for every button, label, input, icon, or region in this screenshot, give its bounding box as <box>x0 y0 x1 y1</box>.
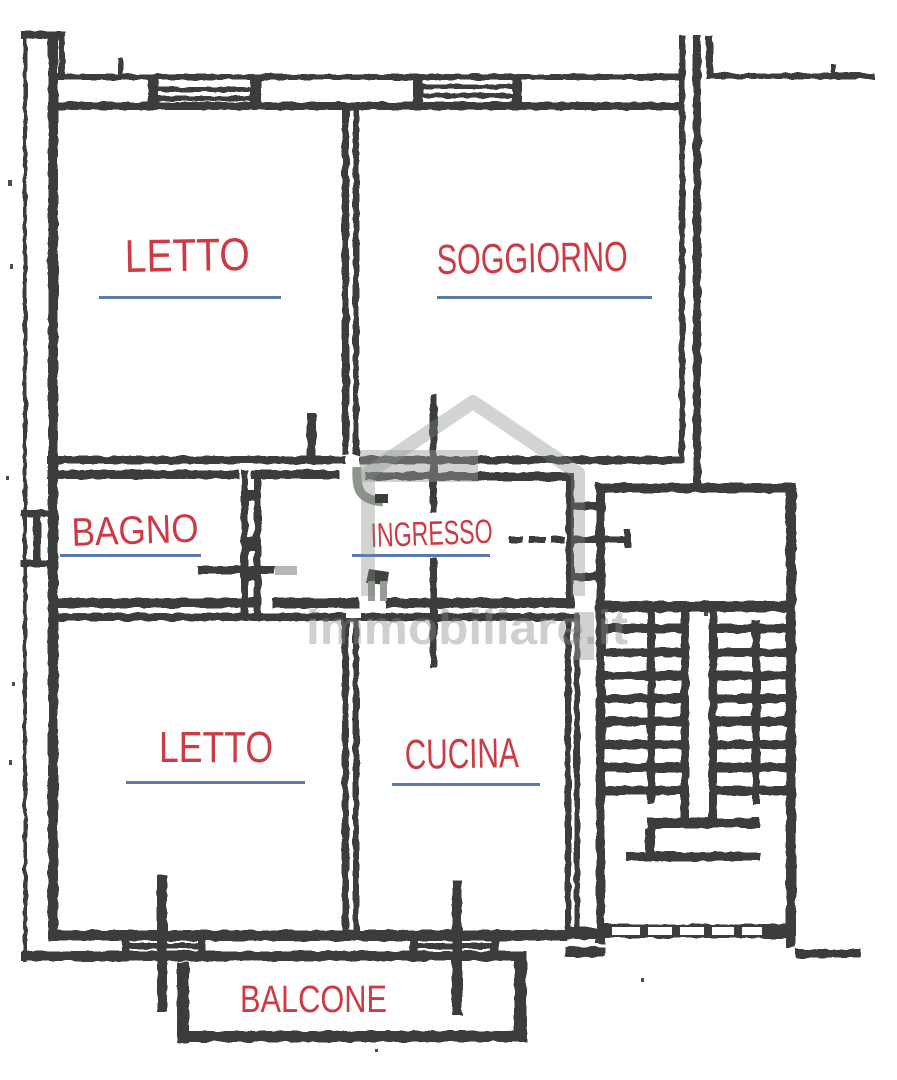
svg-text:LETTO: LETTO <box>124 228 250 282</box>
svg-text:BALCONE: BALCONE <box>240 979 387 1021</box>
svg-text:CUCINA: CUCINA <box>404 729 519 778</box>
svg-text:immobiliare.it: immobiliare.it <box>306 602 628 655</box>
svg-text:SOGGIORNO: SOGGIORNO <box>436 233 628 283</box>
svg-text:LETTO: LETTO <box>159 723 273 772</box>
svg-text:BAGNO: BAGNO <box>71 507 199 555</box>
svg-text:INGRESSO: INGRESSO <box>370 513 493 555</box>
